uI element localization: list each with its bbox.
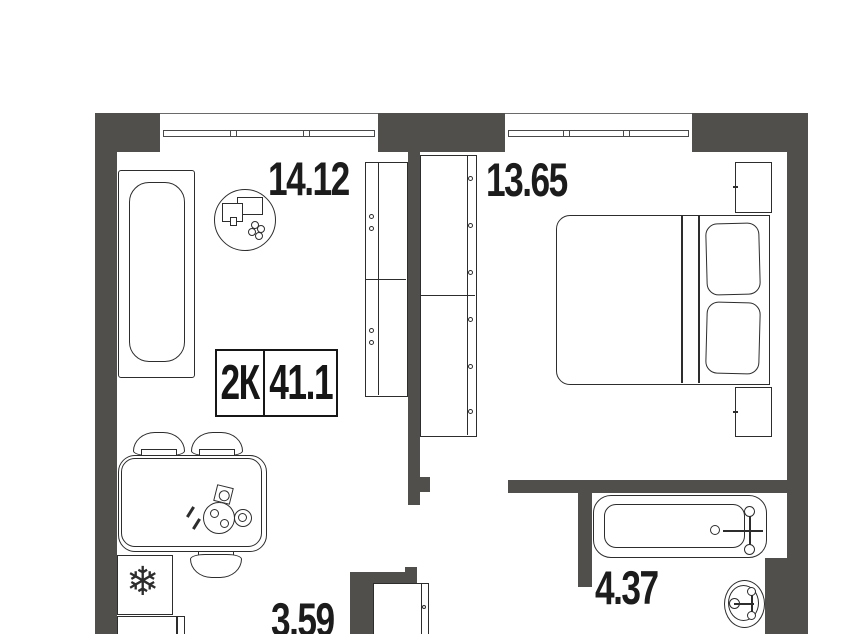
pillow-top bbox=[705, 222, 761, 295]
chair-back-bottom bbox=[190, 554, 242, 578]
bathtub-faucet-knob-top bbox=[744, 506, 755, 517]
bathtub-basin bbox=[604, 504, 745, 548]
wall-top-pier bbox=[378, 113, 505, 152]
decor-frame-3 bbox=[230, 217, 237, 226]
wardrobe-bedroom-handle-4 bbox=[468, 317, 473, 322]
bed-foot-divider-1 bbox=[681, 216, 683, 383]
bathroom-area-label: 4.37 bbox=[595, 564, 658, 611]
kitchen-hall-area-label: 3.59 bbox=[271, 596, 334, 634]
apartment-type-cell: 2К bbox=[215, 349, 265, 417]
plate-large-dot-2 bbox=[220, 519, 229, 528]
nightstand-top-handle bbox=[733, 186, 738, 188]
nightstand-bottom bbox=[735, 387, 772, 437]
window-living-glazing bbox=[163, 130, 375, 137]
bathtub-faucet-bar bbox=[723, 530, 763, 532]
kitchen-cabinet bbox=[117, 616, 185, 634]
apartment-label-box: 2К 41.1 bbox=[215, 349, 338, 417]
decor-flower-dot-4 bbox=[255, 232, 263, 240]
wall-bedroom-south bbox=[508, 480, 787, 493]
bathtub-faucet-knob-bottom bbox=[744, 544, 755, 555]
window-living-mullion-1 bbox=[230, 130, 237, 137]
hall-closet-handle bbox=[422, 605, 426, 609]
pillow-bottom bbox=[705, 301, 761, 374]
bathtub bbox=[593, 495, 767, 558]
wardrobe-living-handle-2 bbox=[369, 226, 374, 231]
living-room-area-label: 14.12 bbox=[268, 155, 349, 202]
wardrobe-bedroom-handle-1 bbox=[468, 176, 473, 181]
sofa bbox=[118, 170, 195, 378]
window-bedroom-outer-line bbox=[505, 113, 692, 114]
wall-left bbox=[95, 113, 117, 634]
decor-table bbox=[214, 189, 276, 251]
wall-bathroom-left bbox=[578, 493, 592, 587]
sink-faucet-knob-bottom bbox=[747, 611, 756, 620]
kitchen-cabinet-divider bbox=[176, 617, 178, 634]
apartment-total-area-label: 41.1 bbox=[269, 355, 332, 411]
bathtub-drain bbox=[710, 525, 720, 535]
apartment-type-label: 2К bbox=[221, 355, 259, 411]
wardrobe-bedroom-handle-6 bbox=[468, 409, 473, 414]
window-bedroom-mullion-1 bbox=[563, 130, 570, 137]
plate-ring-inner bbox=[238, 513, 247, 522]
wardrobe-living-handle-4 bbox=[369, 340, 374, 345]
plate-large-dot-1 bbox=[210, 509, 219, 518]
window-living-mullion-2 bbox=[303, 130, 310, 137]
wardrobe-bedroom-handle-5 bbox=[468, 364, 473, 369]
bedroom-area-label: 13.65 bbox=[486, 156, 567, 203]
nightstand-top bbox=[735, 162, 772, 213]
bed bbox=[556, 215, 770, 385]
wardrobe-living-handle-3 bbox=[369, 328, 374, 333]
apartment-area-cell: 41.1 bbox=[263, 349, 338, 417]
floor-plan: ❄ bbox=[0, 0, 857, 634]
wardrobe-bedroom-divider-h bbox=[421, 295, 475, 296]
wardrobe-living-handle-1 bbox=[369, 214, 374, 219]
hall-closet bbox=[373, 583, 422, 634]
wardrobe-bedroom-handle-2 bbox=[468, 223, 473, 228]
wall-bathroom-duct bbox=[765, 558, 787, 634]
wall-partition bbox=[408, 152, 420, 505]
wall-partition-jamb bbox=[420, 477, 430, 492]
nightstand-bottom-handle bbox=[733, 411, 738, 413]
wardrobe-bedroom-handle-3 bbox=[468, 270, 473, 275]
bed-foot-divider-2 bbox=[698, 216, 700, 383]
sofa-cushion bbox=[129, 182, 185, 362]
wall-right bbox=[787, 113, 808, 634]
plate-square-inner bbox=[218, 489, 231, 502]
window-bedroom-glazing bbox=[508, 130, 689, 137]
sink bbox=[724, 580, 765, 628]
wardrobe-living-divider-h bbox=[366, 279, 406, 280]
wall-hall-arm bbox=[374, 572, 417, 583]
window-bedroom-mullion-2 bbox=[623, 130, 630, 137]
dining-table-inner-edge bbox=[121, 458, 262, 547]
wardrobe-living bbox=[365, 162, 408, 397]
window-living-outer-line bbox=[160, 113, 378, 114]
wardrobe-bedroom bbox=[420, 155, 477, 437]
plate-ring bbox=[234, 509, 252, 527]
snowflake-icon: ❄ bbox=[126, 562, 160, 602]
plate-large bbox=[203, 502, 235, 534]
dining-table bbox=[118, 455, 267, 552]
wall-hall-vertical bbox=[350, 572, 374, 634]
wall-hall-jamb bbox=[405, 567, 417, 573]
sink-faucet-knob-top bbox=[747, 587, 756, 596]
